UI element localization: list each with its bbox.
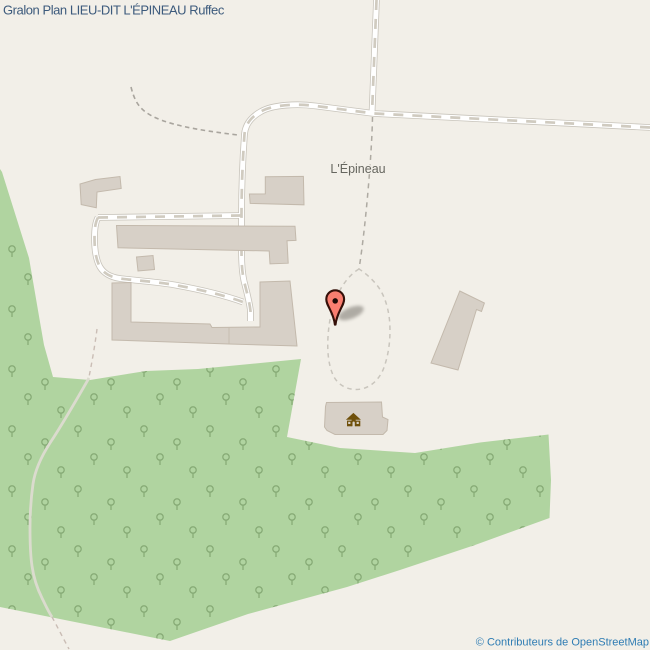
svg-text:Gralon Plan LIEU-DIT L'ÉPINEAU: Gralon Plan LIEU-DIT L'ÉPINEAU Ruffec xyxy=(3,3,225,18)
svg-text:© Contributeurs de OpenStreetM: © Contributeurs de OpenStreetMap xyxy=(476,637,649,649)
svg-text:L'Épineau: L'Épineau xyxy=(330,161,385,176)
